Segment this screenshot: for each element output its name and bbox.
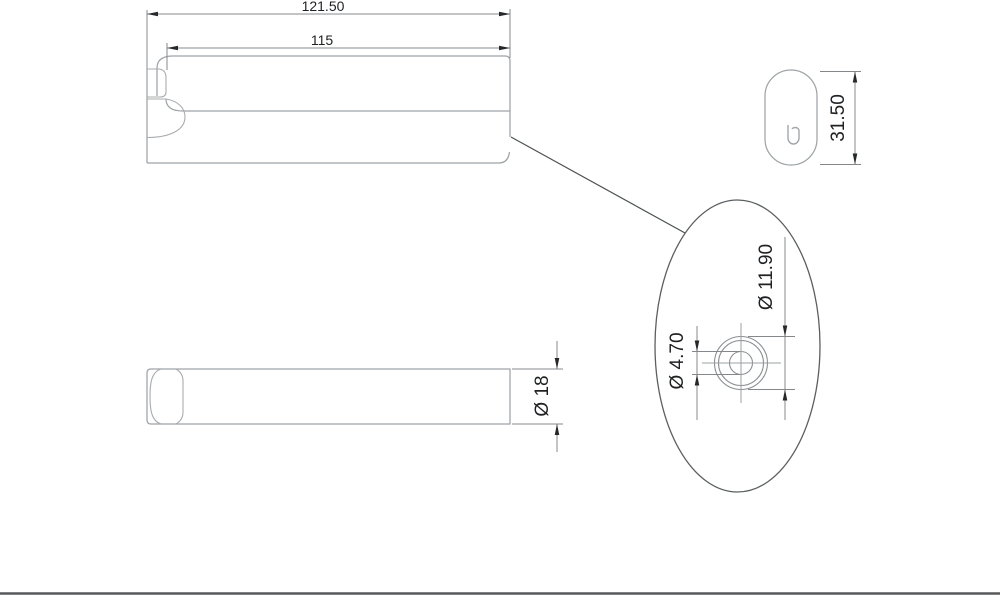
arrow-down-icon	[555, 358, 560, 369]
dim-arm-length: 115	[167, 32, 510, 70]
drawing-canvas: 121.50 115 Ø 18	[0, 0, 1000, 599]
dim-end-height: 31.50	[820, 72, 861, 165]
dim-bar-thickness-label: Ø 18	[532, 375, 553, 416]
dim-hole-outer: Ø 11.90	[748, 237, 795, 420]
end-view: 31.50	[765, 70, 861, 165]
dim-arm-length-label: 115	[311, 32, 334, 48]
front-view-top-edge	[172, 56, 510, 61]
side-view-cap-line	[176, 369, 183, 424]
arrow-down-icon	[783, 326, 788, 337]
front-view-top-left-curve	[157, 56, 172, 96]
detail-leader-line	[511, 137, 685, 233]
dim-hole-inner-label: Ø 4.70	[667, 332, 688, 389]
technical-drawing: 121.50 115 Ø 18	[0, 0, 1000, 599]
dim-overall-length: 121.50	[147, 0, 510, 58]
front-view-bottom-edge	[147, 152, 510, 163]
dim-end-height-label: 31.50	[828, 94, 849, 142]
end-view-outline	[765, 70, 817, 165]
dim-bar-thickness: Ø 18	[512, 341, 563, 452]
arrow-down-icon	[853, 154, 858, 165]
arrow-right-icon	[499, 12, 510, 17]
side-view-outline	[147, 369, 510, 424]
dim-hole-outer-label: Ø 11.90	[756, 244, 777, 310]
arrow-right-icon	[499, 46, 510, 51]
end-view-hook-mark	[788, 125, 799, 144]
arrow-up-icon	[853, 72, 858, 83]
side-view: Ø 18	[147, 341, 563, 452]
arrow-up-icon	[783, 390, 788, 401]
arrow-left-icon	[147, 12, 158, 17]
front-view: 121.50 115	[147, 0, 510, 163]
front-view-mid-line	[166, 99, 510, 111]
arrow-up-icon	[695, 375, 700, 386]
dim-overall-length-label: 121.50	[302, 0, 345, 14]
arrow-down-icon	[695, 341, 700, 352]
arrow-up-icon	[555, 424, 560, 435]
hook-bulge	[147, 99, 185, 138]
dim-hole-inner: Ø 4.70	[667, 326, 740, 420]
arrow-left-icon	[167, 46, 178, 51]
side-view-dome	[150, 369, 161, 424]
